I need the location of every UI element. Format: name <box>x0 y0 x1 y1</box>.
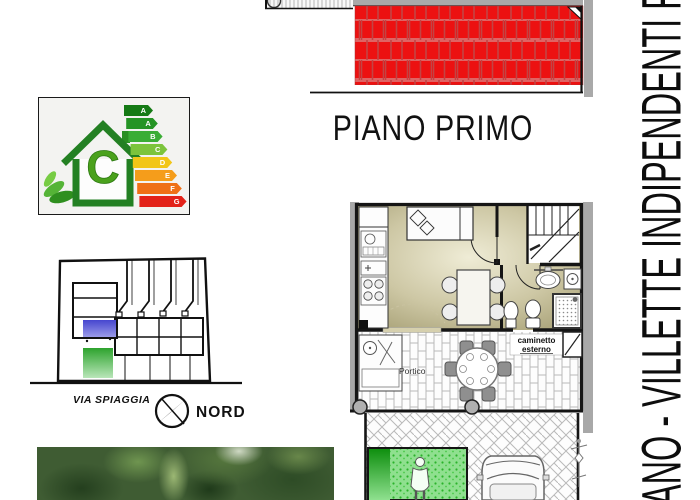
bath-sink <box>536 272 560 289</box>
outdoor-fireplace-label: caminetto esterno <box>510 334 563 355</box>
compass-icon <box>156 395 188 427</box>
portico-column <box>465 400 479 414</box>
party-wall-strip-top <box>584 0 593 97</box>
energy-bar <box>135 170 177 181</box>
compass-label: NORD <box>196 404 245 421</box>
svg-text:G: G <box>174 197 180 206</box>
energy-bar <box>126 118 158 129</box>
sliding-door-threshold <box>383 328 441 333</box>
svg-text:A: A <box>145 119 151 128</box>
first-floor-roof-fragment <box>265 0 600 100</box>
party-wall-strip-right <box>583 202 593 433</box>
floor-label: PIANO PRIMO <box>349 108 518 150</box>
energy-bar <box>137 183 182 194</box>
brochure-page: PIANO PRIMO C A A B C D E <box>0 0 700 500</box>
svg-text:F: F <box>170 184 175 193</box>
energy-bar <box>131 144 168 155</box>
vertical-title: ANO - VILLETTE INDIPENDENTI F <box>629 0 694 500</box>
svg-text:esterno: esterno <box>522 345 551 354</box>
photo-trees <box>37 447 334 500</box>
energy-class-letter: C <box>86 141 119 193</box>
ground-floor-plan: Portico caminetto esterno <box>350 195 598 500</box>
highlighted-unit-garden <box>83 348 113 378</box>
svg-text:A: A <box>141 106 147 115</box>
energy-class-label: C A A B C D E F G <box>38 97 190 215</box>
car-icon <box>477 456 549 500</box>
portico-column <box>353 400 367 414</box>
outdoor-fireplace-icon <box>563 332 582 357</box>
svg-text:C: C <box>155 145 161 154</box>
bidet <box>504 302 518 321</box>
terrace-strip <box>265 0 353 9</box>
roof-ridge-band <box>353 0 583 6</box>
portico-label: Portico <box>399 366 426 376</box>
energy-bar <box>133 157 172 168</box>
street-label: VIA SPIAGGIA <box>73 394 150 406</box>
svg-text:D: D <box>160 158 166 167</box>
bed <box>407 207 473 240</box>
energy-bar <box>128 131 162 142</box>
red-roof-tiles <box>355 6 583 85</box>
svg-text:E: E <box>165 171 170 180</box>
highlighted-unit-upper <box>83 320 116 337</box>
svg-text:caminetto: caminetto <box>518 336 556 345</box>
svg-text:B: B <box>150 132 156 141</box>
toilet <box>526 300 541 318</box>
energy-bar <box>124 105 153 116</box>
kitchen-unit <box>359 207 388 329</box>
kitchen-sink <box>365 234 375 244</box>
plot-boundary <box>58 259 210 382</box>
site-plan: VIA SPIAGGIA NORD <box>30 253 245 438</box>
